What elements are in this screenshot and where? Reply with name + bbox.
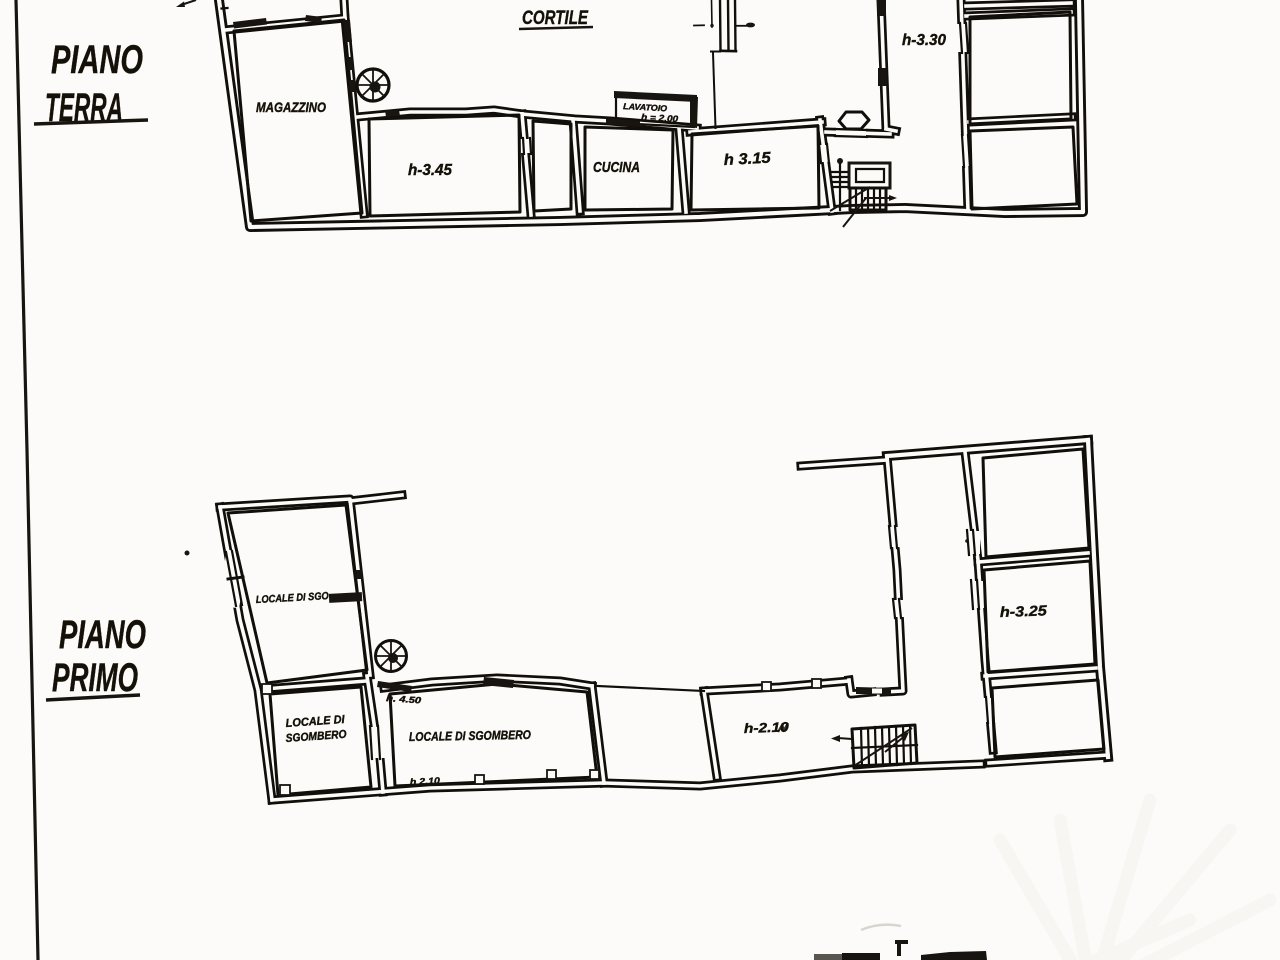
svg-text:h-3.30: h-3.30 xyxy=(902,32,946,49)
svg-text:h = 2.00: h = 2.00 xyxy=(641,112,678,124)
svg-text:SGOMBERO: SGOMBERO xyxy=(285,729,347,745)
svg-text:LOCALE DI: LOCALE DI xyxy=(285,714,345,730)
svg-text:LOCALE DI SGO: LOCALE DI SGO xyxy=(255,590,329,606)
svg-text:h-3.25: h-3.25 xyxy=(1000,603,1049,621)
svg-text:MAGAZZINO: MAGAZZINO xyxy=(256,100,326,115)
svg-text:PIANO: PIANO xyxy=(51,38,143,82)
svg-text:CORTILE: CORTILE xyxy=(522,8,589,29)
svg-text:PRIMO: PRIMO xyxy=(52,656,138,700)
svg-text:h-2.10: h-2.10 xyxy=(744,719,790,736)
svg-text:PIANO: PIANO xyxy=(59,613,146,657)
svg-text:h-3.45: h-3.45 xyxy=(408,162,452,179)
svg-text:CUCINA: CUCINA xyxy=(593,160,640,176)
svg-text:h 2.10: h 2.10 xyxy=(410,775,440,787)
svg-text:h 3.15: h 3.15 xyxy=(723,150,771,169)
svg-text:LOCALE DI SGOMBERO: LOCALE DI SGOMBERO xyxy=(409,728,531,744)
